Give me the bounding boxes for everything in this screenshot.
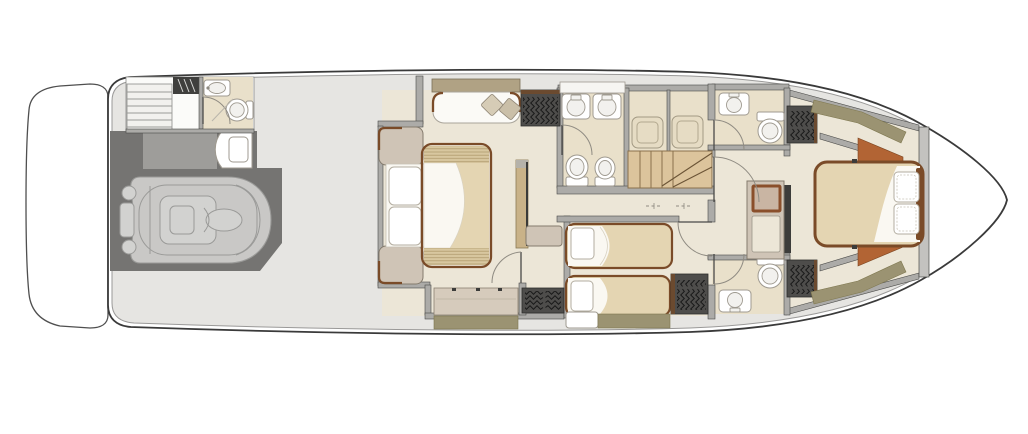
port-head-sink bbox=[719, 93, 749, 115]
bidet bbox=[595, 157, 615, 186]
vip-bed-slat-bottom-lines bbox=[424, 248, 489, 265]
stbd-head-toilet bbox=[757, 256, 784, 288]
companionway-steps bbox=[173, 77, 200, 94]
main-staircase bbox=[628, 151, 712, 188]
tender-dinghy bbox=[120, 177, 271, 263]
twin-step-locker bbox=[566, 312, 598, 328]
crew-shower-tray bbox=[229, 137, 248, 162]
nightstand-top bbox=[379, 127, 423, 165]
stbd-head-sink bbox=[719, 290, 751, 312]
vip-lower-locker bbox=[522, 288, 564, 313]
yacht-lower-deck-plan bbox=[0, 0, 1028, 434]
tender-seat bbox=[206, 209, 242, 231]
twin-hullside-panel bbox=[598, 314, 670, 328]
swim-platform bbox=[26, 84, 108, 328]
vip-bench bbox=[526, 226, 562, 246]
garage-recess bbox=[143, 131, 217, 169]
vip-bed-slat-top-lines bbox=[424, 146, 489, 163]
vip-pillow-1 bbox=[389, 167, 421, 205]
tender-garage bbox=[110, 131, 282, 271]
master-bed bbox=[815, 159, 923, 249]
crew-stairs bbox=[127, 84, 172, 132]
crew-quarters bbox=[126, 77, 254, 133]
twin-bed-2 bbox=[566, 276, 670, 316]
vanity-sink-2 bbox=[593, 94, 621, 119]
vip-hanging-locker bbox=[521, 90, 560, 126]
vip-hullside-panel bbox=[434, 316, 518, 329]
toilet bbox=[566, 155, 588, 186]
tender-sponson-aft-top bbox=[122, 186, 136, 200]
vanity-sink-1 bbox=[562, 94, 590, 119]
crew-sink bbox=[204, 80, 230, 96]
floor-plan-canvas bbox=[0, 0, 1028, 434]
vanity-counter bbox=[560, 82, 625, 93]
vip-dresser bbox=[434, 288, 518, 315]
master-tv-slab bbox=[784, 185, 791, 253]
crew-aft-wall bbox=[126, 129, 254, 133]
vip-pillow-2 bbox=[389, 207, 421, 245]
twin-hanging-locker bbox=[671, 274, 708, 314]
nightstand-bottom bbox=[379, 246, 423, 284]
vip-sofa-shelf bbox=[432, 79, 520, 92]
outboard-engine bbox=[120, 203, 134, 237]
port-head-toilet bbox=[757, 112, 784, 143]
vestibule-drawer-unit bbox=[752, 216, 780, 252]
twin-bed-1 bbox=[566, 224, 672, 268]
tender-sponson-aft-bottom bbox=[122, 240, 136, 254]
